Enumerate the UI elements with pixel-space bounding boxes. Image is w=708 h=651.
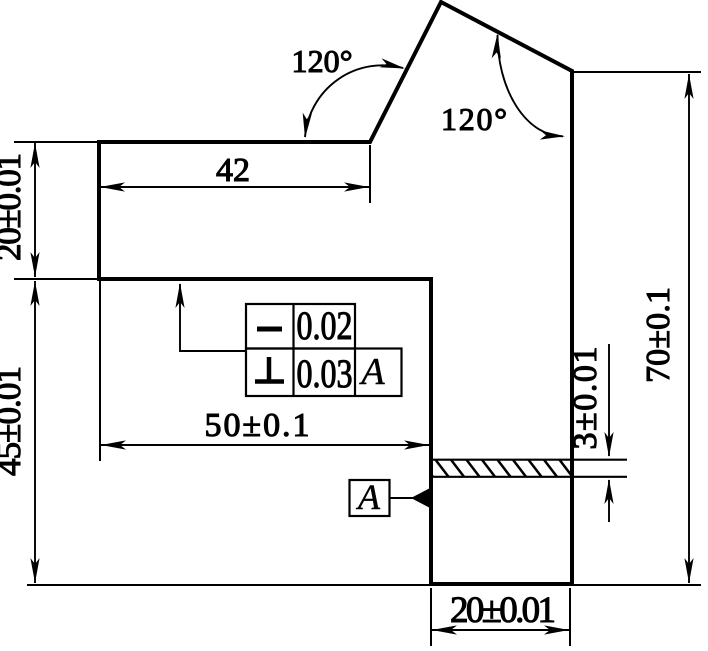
svg-text:120°: 120° (292, 43, 353, 79)
svg-text:20±0.01: 20±0.01 (450, 590, 556, 631)
svg-text:0.03: 0.03 (297, 351, 353, 396)
svg-text:0.02: 0.02 (297, 303, 353, 348)
svg-text:120°: 120° (441, 101, 507, 137)
svg-text:42: 42 (216, 152, 250, 189)
svg-text:20±0.01: 20±0.01 (0, 153, 28, 261)
svg-text:70±0.1: 70±0.1 (640, 287, 677, 383)
svg-text:A: A (358, 351, 385, 393)
svg-text:50±0.1: 50±0.1 (205, 407, 310, 444)
svg-text:45±0.01: 45±0.01 (0, 366, 28, 476)
svg-text:A: A (356, 477, 381, 517)
svg-text:3±0.01: 3±0.01 (567, 347, 604, 450)
